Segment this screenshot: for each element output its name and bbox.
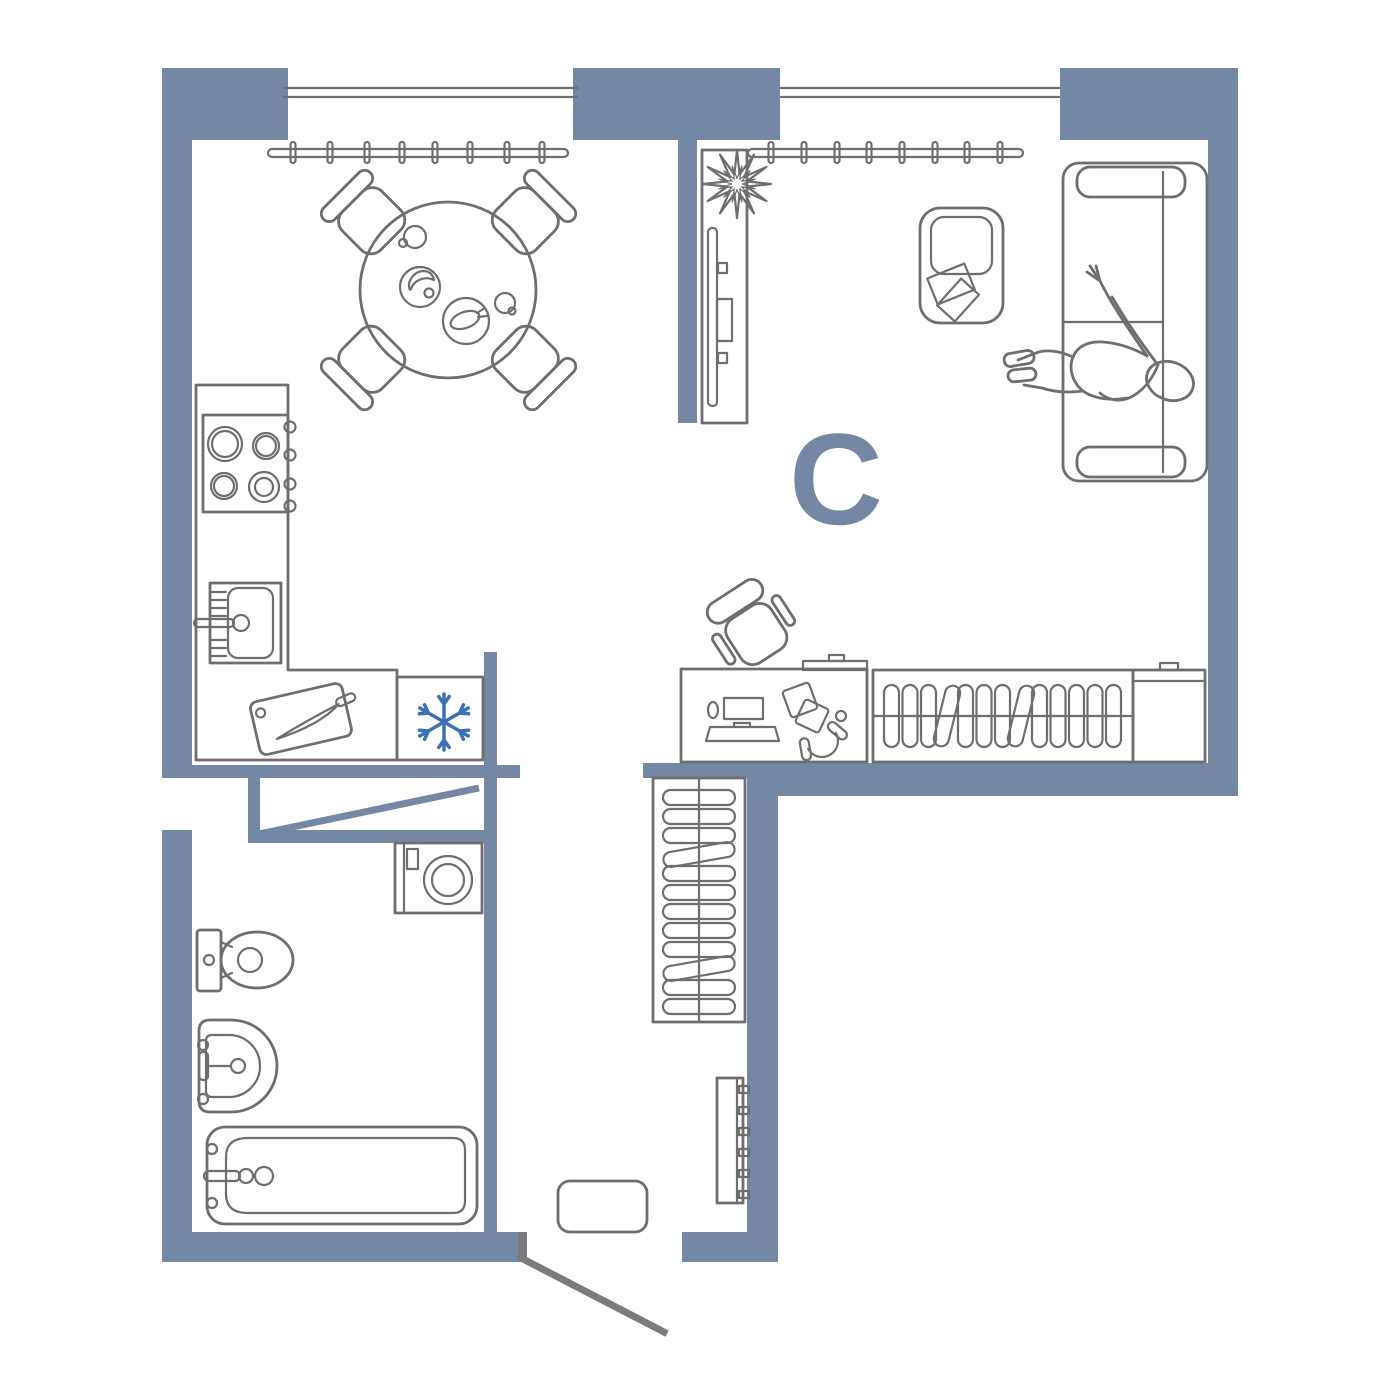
wall-kitchen-bath-partition <box>484 652 497 1232</box>
compass-north-label: C <box>789 406 883 552</box>
dining-table <box>360 202 536 378</box>
bathtub <box>204 1127 477 1224</box>
curtain-rail-kitchen <box>268 142 568 163</box>
doormat <box>558 1181 647 1232</box>
dining-chair <box>483 317 579 413</box>
cup-icon <box>495 293 516 315</box>
wall-left-lower <box>162 830 192 1262</box>
computer-icon <box>706 698 779 741</box>
stove <box>203 415 296 512</box>
cutting-board <box>249 680 364 756</box>
snowflake-icon <box>417 694 471 750</box>
walls <box>162 68 1238 1262</box>
wall-bottom-right-stub <box>682 1232 778 1262</box>
wall-above-closet <box>643 763 747 778</box>
papers-icon <box>782 682 846 733</box>
window-living <box>781 88 1059 97</box>
wardrobe-cabinet <box>1133 663 1205 762</box>
ottoman <box>920 208 1003 323</box>
toilet <box>197 930 293 991</box>
wardrobe-hangers <box>873 670 1133 762</box>
tv-icon <box>708 228 732 406</box>
plant-icon <box>703 150 771 218</box>
washbasin <box>198 1020 277 1112</box>
desk-chair <box>695 570 803 677</box>
person-lying <box>1003 266 1199 407</box>
desk <box>681 655 867 768</box>
bathroom-door-leaf <box>259 788 479 834</box>
entrance-door <box>518 1232 664 1332</box>
closet-hangers <box>653 778 745 1022</box>
wall-hallway-right <box>747 763 778 1262</box>
washing-machine <box>395 843 482 913</box>
sofa <box>1063 163 1207 481</box>
dining-chair <box>483 167 579 263</box>
curtain-rail-living <box>748 142 1023 163</box>
entrance-door-leaf <box>523 1259 664 1332</box>
refrigerator <box>397 677 483 760</box>
plate-croissant-icon <box>400 267 440 307</box>
wall-bottom-left <box>162 1232 520 1262</box>
faucet-icon <box>204 1144 253 1208</box>
wall-top-middle <box>573 68 780 140</box>
shoe-rack <box>717 1078 749 1203</box>
wall-right <box>1208 68 1238 796</box>
floor-plan-canvas: C <box>0 0 1400 1400</box>
wall-kitchen-bottom <box>162 765 520 778</box>
wall-living-bottom <box>747 763 1238 796</box>
magazines-icon <box>927 264 979 322</box>
window-kitchen <box>284 88 577 97</box>
wall-left-upper <box>162 68 192 778</box>
kitchen-counter <box>196 385 397 760</box>
wall-tv-partition <box>678 138 697 423</box>
kitchen-sink <box>194 583 281 663</box>
plate-fish-icon <box>443 298 489 344</box>
